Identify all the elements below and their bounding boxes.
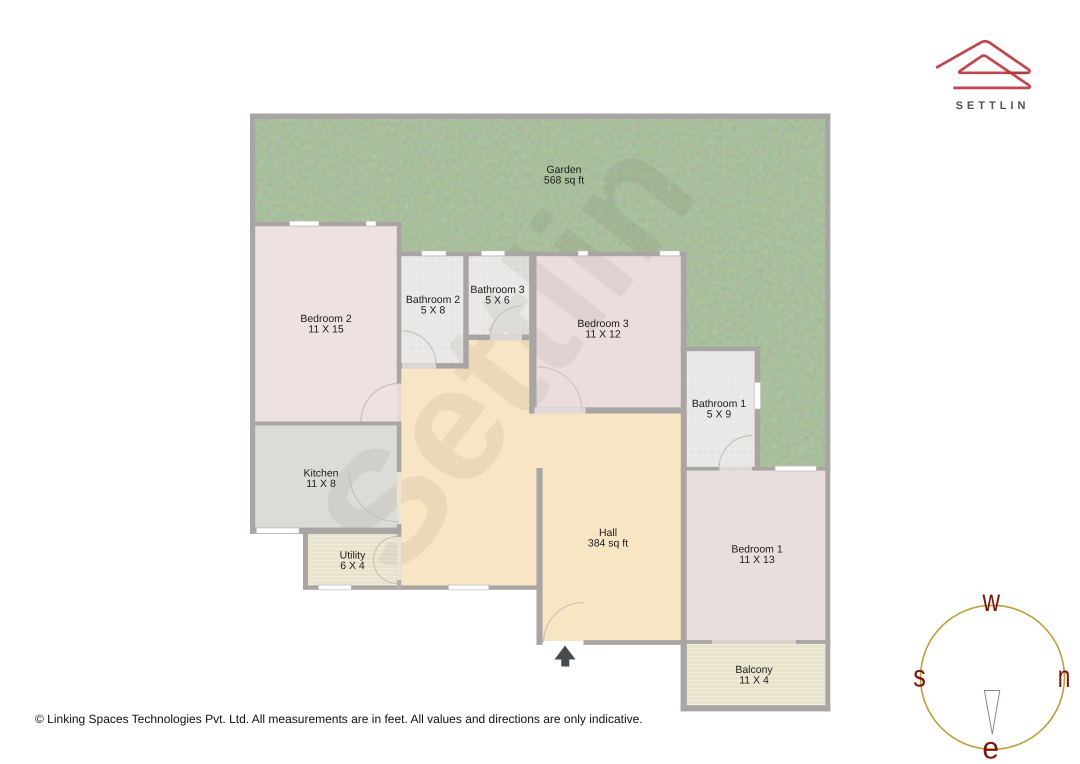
svg-text:11 X 15: 11 X 15: [308, 324, 344, 336]
svg-text:s: s: [913, 659, 926, 694]
svg-text:11 X 8: 11 X 8: [306, 478, 336, 490]
svg-text:384 sq ft: 384 sq ft: [588, 538, 628, 550]
svg-text:5 X 8: 5 X 8: [421, 305, 446, 317]
svg-text:n: n: [1058, 659, 1071, 694]
svg-text:11 X 4: 11 X 4: [739, 675, 769, 687]
svg-text:11 X 13: 11 X 13: [739, 554, 775, 566]
svg-text:568 sq ft: 568 sq ft: [544, 175, 584, 187]
svg-text:5 X 9: 5 X 9: [707, 409, 732, 421]
svg-text:w: w: [982, 583, 1001, 618]
svg-text:© Linking Spaces Technologies: © Linking Spaces Technologies Pvt. Ltd. …: [35, 712, 643, 726]
svg-text:6 X 4: 6 X 4: [340, 560, 365, 572]
svg-text:SETTLIN: SETTLIN: [956, 100, 1030, 112]
svg-text:5 X 6: 5 X 6: [485, 295, 510, 307]
svg-text:11 X 12: 11 X 12: [585, 329, 621, 341]
svg-text:e: e: [982, 731, 999, 764]
